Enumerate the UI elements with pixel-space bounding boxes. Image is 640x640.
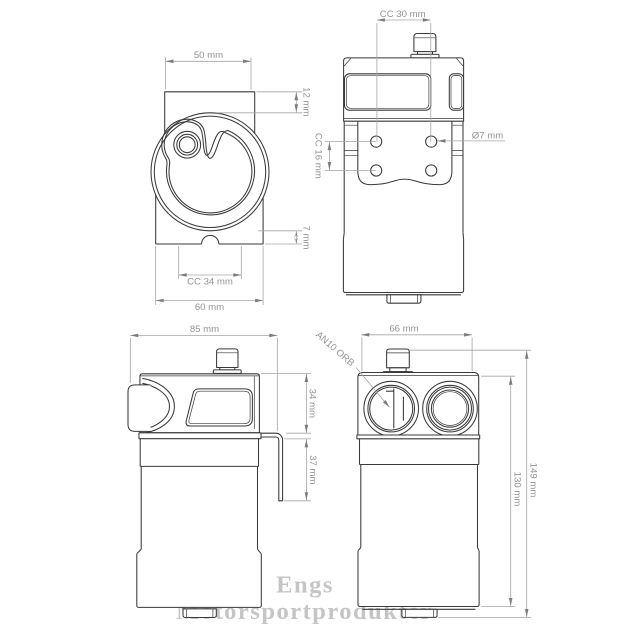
svg-text:CC 30 mm: CC 30 mm (380, 9, 426, 20)
svg-text:34 mm: 34 mm (306, 389, 317, 418)
svg-text:130 mm: 130 mm (511, 472, 522, 507)
svg-text:50 mm: 50 mm (194, 50, 223, 61)
svg-text:CC 16 mm: CC 16 mm (312, 133, 323, 179)
svg-text:37 mm: 37 mm (307, 455, 318, 484)
svg-text:85 mm: 85 mm (190, 324, 219, 335)
svg-text:Engs: Engs (276, 572, 334, 599)
svg-text:12 mm: 12 mm (300, 87, 311, 116)
svg-text:Ø7 mm: Ø7 mm (472, 131, 503, 142)
svg-text:7 mm: 7 mm (300, 226, 311, 250)
svg-text:149 mm: 149 mm (527, 463, 538, 498)
svg-text:CC 34 mm: CC 34 mm (187, 277, 233, 288)
svg-text:60 mm: 60 mm (195, 302, 224, 313)
svg-text:66 mm: 66 mm (389, 323, 418, 334)
